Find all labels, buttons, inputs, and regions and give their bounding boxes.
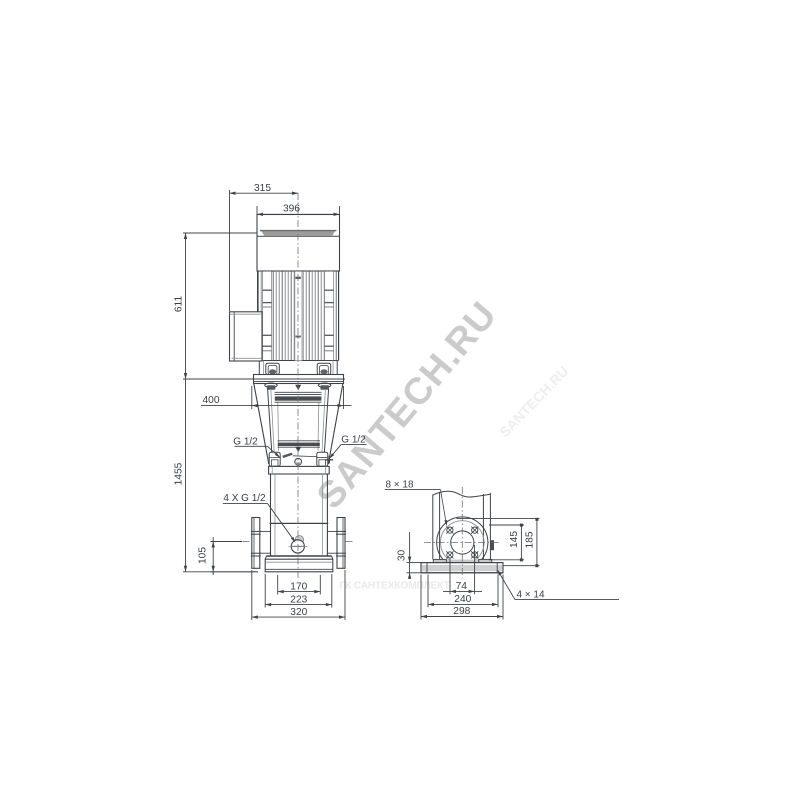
svg-text:G 1/2: G 1/2 bbox=[233, 436, 258, 447]
svg-text:170: 170 bbox=[290, 581, 307, 592]
svg-text:611: 611 bbox=[174, 296, 185, 313]
svg-text:1455: 1455 bbox=[174, 462, 185, 485]
svg-text:74: 74 bbox=[456, 581, 468, 592]
svg-text:4 X G 1/2: 4 X G 1/2 bbox=[223, 493, 266, 504]
svg-text:ГК САНТЕХКОМПЛЕКТ: ГК САНТЕХКОМПЛЕКТ bbox=[339, 581, 450, 592]
svg-text:SANTECH.RU: SANTECH.RU bbox=[496, 363, 571, 440]
svg-text:396: 396 bbox=[283, 204, 300, 215]
svg-text:185: 185 bbox=[525, 531, 536, 548]
svg-text:105: 105 bbox=[198, 547, 209, 564]
svg-text:400: 400 bbox=[203, 395, 220, 406]
svg-text:223: 223 bbox=[290, 594, 307, 605]
svg-text:320: 320 bbox=[290, 607, 307, 618]
svg-text:240: 240 bbox=[454, 594, 471, 605]
svg-text:30: 30 bbox=[396, 550, 407, 562]
svg-text:145: 145 bbox=[509, 531, 520, 548]
svg-text:8 × 18: 8 × 18 bbox=[385, 479, 414, 490]
svg-text:4 × 14: 4 × 14 bbox=[516, 590, 545, 601]
svg-text:315: 315 bbox=[254, 183, 271, 194]
svg-text:298: 298 bbox=[453, 606, 470, 617]
